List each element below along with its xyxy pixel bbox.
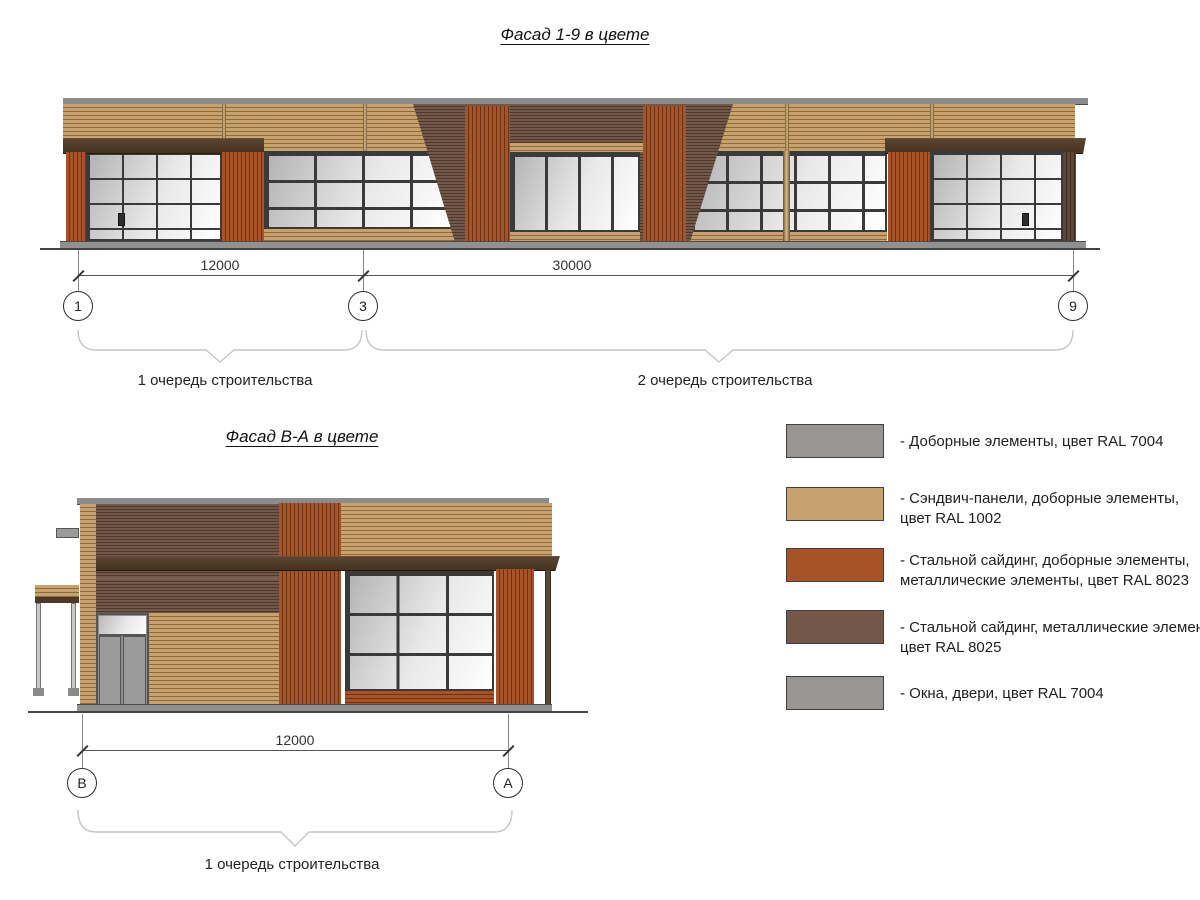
phase-brace xyxy=(0,808,1200,858)
page-canvas: Фасад 1-9 в цвете xyxy=(0,0,1200,900)
orange-slat-column xyxy=(279,503,341,710)
facade-1-9-title: Фасад 1-9 в цвете xyxy=(425,25,725,45)
orange-pilaster-right xyxy=(888,152,930,241)
door-leaf xyxy=(99,636,121,706)
tan-strip-under-window xyxy=(264,229,455,241)
extension-line xyxy=(363,250,364,292)
grid-bubble-B: В xyxy=(67,768,97,798)
extension-line xyxy=(1073,250,1074,292)
orange-slat-column xyxy=(643,106,686,242)
facade-b-a-drawing xyxy=(28,495,598,720)
legend-swatch-ral1002 xyxy=(786,487,884,521)
phase-braces xyxy=(0,328,1200,378)
dimension-label: 30000 xyxy=(472,257,672,273)
storefront-glazing-right xyxy=(930,151,1063,241)
legend-text: - Окна, двери, цвет RAL 7004 xyxy=(900,684,1104,704)
grid-bubble-3: 3 xyxy=(348,291,378,321)
central-window xyxy=(510,152,640,232)
door-handle-left xyxy=(118,213,125,226)
legend-text: - Стальной сайдинг, доборные элементы, м… xyxy=(900,551,1190,591)
storefront-glazing-left xyxy=(86,151,222,241)
cladding-seam xyxy=(363,104,367,151)
cladding-seam xyxy=(785,104,789,151)
dark-edge-strip xyxy=(1063,152,1076,241)
phase-label-1: 1 очередь строительства xyxy=(142,856,442,873)
cladding-seam xyxy=(783,151,790,241)
porch-post xyxy=(36,603,41,691)
legend-swatch-ral8023 xyxy=(786,548,884,582)
legend-swatch-windows-ral7004 xyxy=(786,676,884,710)
extension-line xyxy=(508,714,509,768)
legend-text: - Сэндвич-панели, доборные элементы, цве… xyxy=(900,489,1179,529)
canopy-band xyxy=(96,556,560,571)
facade-1-9-drawing xyxy=(40,98,1110,252)
orange-slat-column xyxy=(222,152,264,241)
entrance-door xyxy=(96,613,149,709)
door-handle-right xyxy=(1022,213,1029,226)
phase-label-1: 1 очередь строительства xyxy=(75,372,375,389)
tan-upper-band xyxy=(341,503,552,556)
extension-line xyxy=(78,250,79,292)
storefront-glazing-mid-left xyxy=(264,151,455,229)
orange-slat-column xyxy=(496,569,534,709)
dark-wedge-ral8025 xyxy=(413,104,733,242)
dimension-line xyxy=(82,750,508,751)
ground-line xyxy=(40,248,1100,250)
dimension-line xyxy=(78,275,1073,276)
tan-strip xyxy=(510,143,643,152)
legend-swatch-ral7004 xyxy=(786,424,884,458)
porch-post xyxy=(71,603,76,691)
door-leaf xyxy=(123,636,146,706)
porch-post-base xyxy=(68,688,79,696)
grid-bubble-9: 9 xyxy=(1058,291,1088,321)
porch-canopy xyxy=(35,585,79,597)
wall-seam xyxy=(96,578,279,579)
facade-b-a-title: Фасад В-А в цвете xyxy=(152,427,452,447)
legend-text: - Стальной сайдинг, металлические элемен… xyxy=(900,618,1200,658)
grid-bubble-1: 1 xyxy=(63,291,93,321)
legend-text: - Доборные элементы, цвет RAL 7004 xyxy=(900,432,1163,452)
phase-label-2: 2 очередь строительства xyxy=(575,372,875,389)
gray-beam xyxy=(56,528,79,538)
porch-post-base xyxy=(33,688,44,696)
orange-pilaster-left xyxy=(66,152,86,241)
orange-slat-column xyxy=(465,106,510,242)
door-transom xyxy=(99,616,146,636)
tan-lower-wall xyxy=(149,613,279,709)
ground-line xyxy=(28,711,588,713)
legend-swatch-ral8025 xyxy=(786,610,884,644)
dimension-label: 12000 xyxy=(195,732,395,748)
extension-line xyxy=(82,714,83,768)
window-3x3 xyxy=(345,571,494,691)
grid-bubble-A: А xyxy=(493,768,523,798)
canopy-post-right xyxy=(545,569,551,706)
tan-corner-column xyxy=(80,504,96,709)
dimension-label: 12000 xyxy=(120,257,320,273)
